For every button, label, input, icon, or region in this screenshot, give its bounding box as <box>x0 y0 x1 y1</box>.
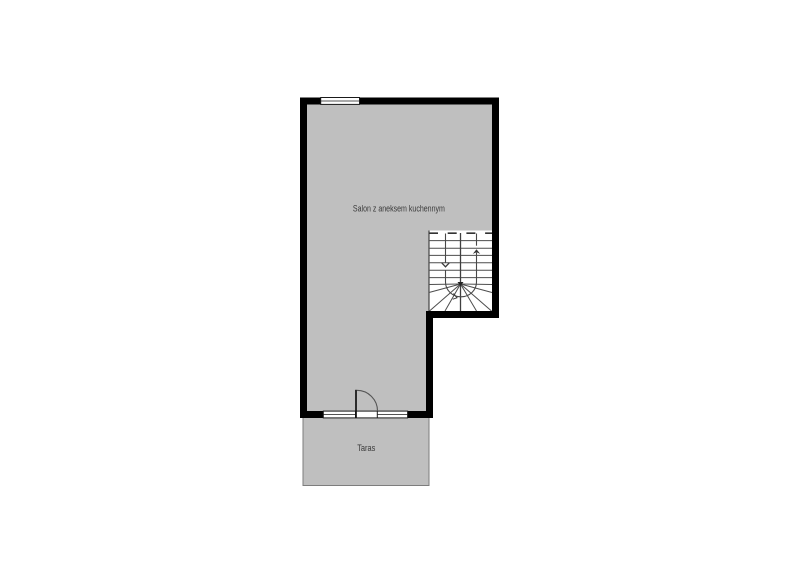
svg-text:Taras: Taras <box>357 443 376 453</box>
svg-text:Salon z aneksem kuchennym: Salon z aneksem kuchennym <box>353 203 445 213</box>
